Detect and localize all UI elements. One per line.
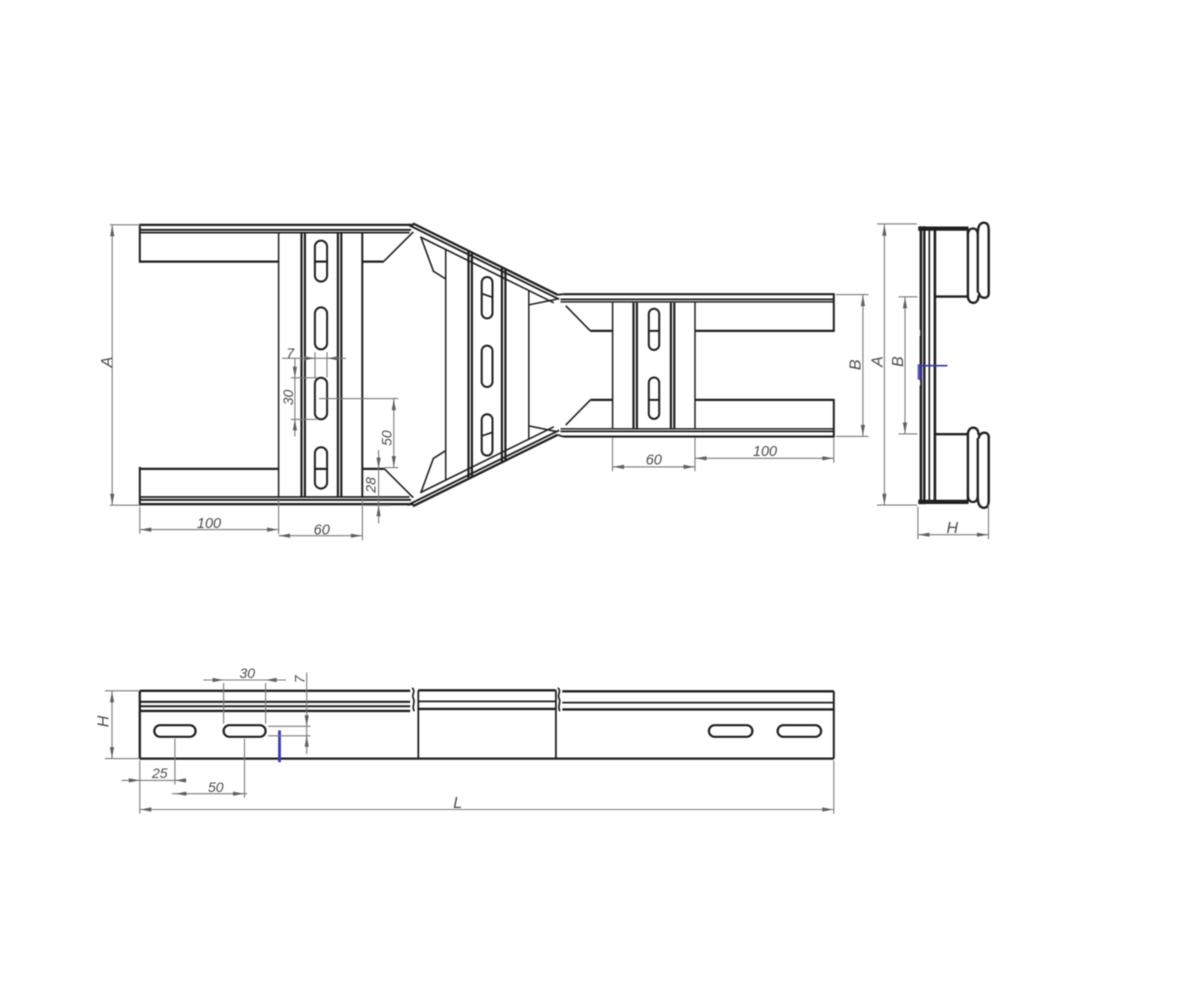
svg-text:100: 100 — [197, 516, 221, 532]
svg-text:B: B — [848, 359, 865, 370]
svg-text:7: 7 — [286, 345, 295, 361]
svg-text:30: 30 — [280, 390, 296, 406]
svg-text:50: 50 — [379, 430, 395, 446]
svg-text:30: 30 — [240, 665, 256, 681]
svg-text:25: 25 — [151, 765, 168, 781]
svg-text:B: B — [890, 356, 907, 367]
svg-text:L: L — [453, 795, 462, 812]
svg-text:50: 50 — [208, 779, 224, 795]
svg-text:60: 60 — [314, 523, 330, 539]
svg-text:H: H — [96, 715, 113, 727]
svg-text:H: H — [947, 520, 959, 537]
svg-text:A: A — [870, 356, 887, 368]
svg-text:100: 100 — [753, 444, 777, 460]
svg-text:28: 28 — [362, 477, 378, 494]
svg-text:60: 60 — [646, 453, 662, 469]
svg-text:A: A — [99, 357, 116, 369]
svg-text:7: 7 — [292, 674, 308, 683]
